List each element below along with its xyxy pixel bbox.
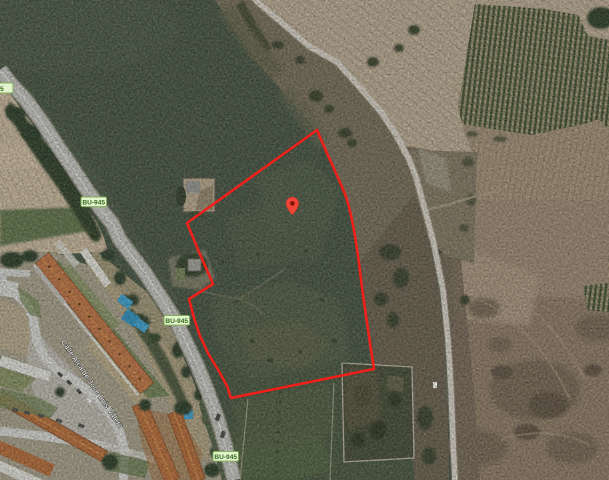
svg-text:BU-945: BU-945 (214, 454, 237, 461)
svg-text:45: 45 (0, 86, 4, 93)
svg-text:BU-945: BU-945 (82, 199, 105, 206)
svg-text:BU-945: BU-945 (165, 318, 188, 325)
